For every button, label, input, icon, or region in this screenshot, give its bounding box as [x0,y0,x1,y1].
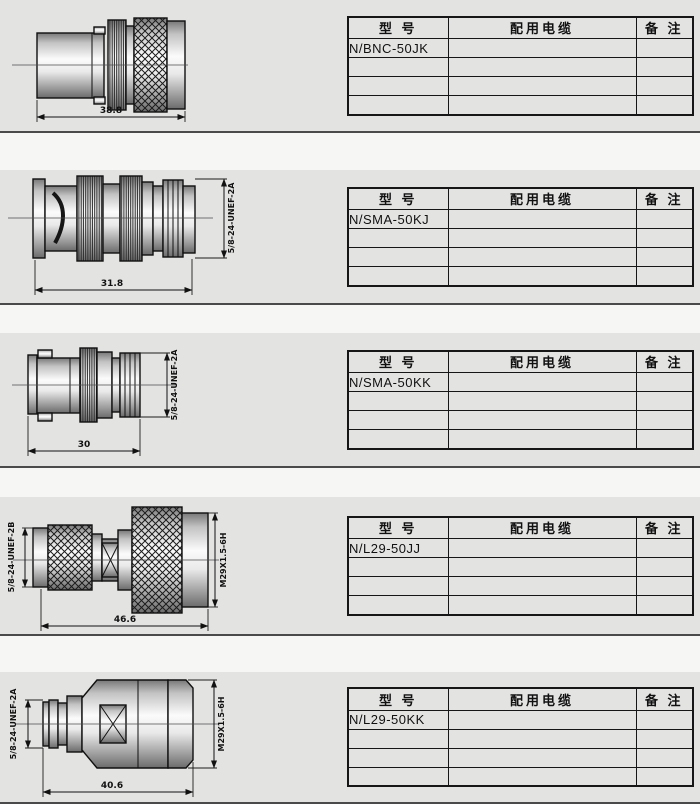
table-header-row: 型 号 配用电缆 备 注 [348,517,693,539]
cable-cell [448,39,636,58]
header-model: 型 号 [348,688,448,710]
empty-cell [448,729,636,748]
dimension-label: 38.8 [100,106,122,116]
drawing-n-l29-50jj: 5/8-24-UNEF-2B M29X1.5-6H 46.6 [5,499,240,636]
connector-body [13,507,219,613]
thread-label: 5/8-24-UNEF-2B [7,522,16,593]
table-row [348,229,693,248]
section-n-bnc-50jk: 38.8 型 号 配用电缆 备 注 N/BNC-50JK [0,0,700,133]
empty-cell [636,596,693,615]
section-n-sma-50kk: 5/8-24-UNEF-2A 30 型 号 配用电缆 备 注 N/SMA-50K… [0,333,700,468]
header-cable: 配用电缆 [448,17,636,39]
empty-cell [636,430,693,449]
table-row: N/BNC-50JK [348,39,693,58]
header-cable: 配用电缆 [448,517,636,539]
spec-table: 型 号 配用电缆 备 注 N/BNC-50JK [347,16,694,116]
section-n-l29-50kk: 5/8-24-UNEF-2A M29X1.5-6H 40.6 型 号 配用电缆 … [0,672,700,804]
thread-dimension-left: 5/8-24-UNEF-2B [7,522,33,593]
spec-table: 型 号 配用电缆 备 注 N/L29-50KK [347,687,694,787]
empty-cell [348,596,448,615]
empty-cell [448,596,636,615]
model-cell: N/SMA-50KK [348,373,448,392]
empty-cell [636,96,693,115]
empty-cell [448,96,636,115]
empty-cell [448,248,636,267]
empty-cell [348,96,448,115]
spec-table-wrap: 型 号 配用电缆 备 注 N/L29-50KK [347,687,694,787]
dimension-label: 30 [78,440,91,450]
section-n-l29-50jj: 5/8-24-UNEF-2B M29X1.5-6H 46.6 型 号 配用电缆 … [0,497,700,636]
table-row [348,411,693,430]
connector-body [15,680,219,768]
thread-dimension-left: 5/8-24-UNEF-2A [9,688,43,760]
model-cell: N/SMA-50KJ [348,210,448,229]
table-row [348,577,693,596]
thread-dimension-right: 5/8-24-UNEF-2A [195,179,236,258]
spec-table-wrap: 型 号 配用电缆 备 注 N/BNC-50JK [347,16,694,116]
header-remark: 备 注 [636,351,693,373]
empty-cell [348,58,448,77]
cable-cell [448,373,636,392]
empty-cell [636,729,693,748]
table-header-row: 型 号 配用电缆 备 注 [348,188,693,210]
remark-cell [636,373,693,392]
empty-cell [348,248,448,267]
drawing-n-sma-50kj: 5/8-24-UNEF-2A 31.8 [8,172,238,304]
thread-label: 5/8-24-UNEF-2A [9,688,18,760]
empty-cell [636,392,693,411]
empty-cell [448,77,636,96]
empty-cell [448,392,636,411]
header-remark: 备 注 [636,688,693,710]
table-row [348,248,693,267]
empty-cell [448,558,636,577]
table-header-row: 型 号 配用电缆 备 注 [348,688,693,710]
empty-cell [348,77,448,96]
cable-cell [448,710,636,729]
remark-cell [636,539,693,558]
table-row [348,748,693,767]
empty-cell [448,411,636,430]
empty-cell [448,229,636,248]
empty-cell [448,748,636,767]
cable-cell [448,210,636,229]
spec-table: 型 号 配用电缆 备 注 N/L29-50JJ [347,516,694,616]
length-dimension: 31.8 [35,259,192,295]
dimension-label: 31.8 [101,279,123,289]
header-model: 型 号 [348,517,448,539]
table-header-row: 型 号 配用电缆 备 注 [348,351,693,373]
header-cable: 配用电缆 [448,688,636,710]
table-row [348,767,693,786]
dimension-label: 46.6 [114,615,136,625]
model-cell: N/L29-50JJ [348,539,448,558]
table-row [348,596,693,615]
drawing-n-bnc-50jk: 38.8 [12,3,192,130]
cable-cell [448,539,636,558]
header-model: 型 号 [348,188,448,210]
table-header-row: 型 号 配用电缆 备 注 [348,17,693,39]
table-row [348,267,693,286]
empty-cell [636,58,693,77]
spec-table: 型 号 配用电缆 备 注 N/SMA-50KJ [347,187,694,287]
section-n-sma-50kj: 5/8-24-UNEF-2A 31.8 型 号 配用电缆 备 注 N/SMA-5… [0,170,700,305]
thread-label: 5/8-24-UNEF-2A [227,182,236,254]
thread-label: M29X1.5-6H [217,696,226,751]
table-row: N/SMA-50KJ [348,210,693,229]
remark-cell [636,210,693,229]
dimension-label: 40.6 [101,781,123,791]
table-row [348,58,693,77]
remark-cell [636,710,693,729]
empty-cell [448,430,636,449]
header-model: 型 号 [348,351,448,373]
header-remark: 备 注 [636,188,693,210]
empty-cell [348,411,448,430]
drawing-n-sma-50kk: 5/8-24-UNEF-2A 30 [12,335,212,467]
remark-cell [636,39,693,58]
connector-body [12,348,177,422]
table-row [348,430,693,449]
table-row [348,96,693,115]
empty-cell [448,58,636,77]
drawing-n-l29-50kk: 5/8-24-UNEF-2A M29X1.5-6H 40.6 [5,674,240,802]
table-row: N/SMA-50KK [348,373,693,392]
empty-cell [448,767,636,786]
empty-cell [636,267,693,286]
thread-label: M29X1.5-6H [219,532,228,587]
empty-cell [636,77,693,96]
model-cell: N/BNC-50JK [348,39,448,58]
empty-cell [636,248,693,267]
header-remark: 备 注 [636,517,693,539]
empty-cell [448,577,636,596]
empty-cell [448,267,636,286]
empty-cell [636,577,693,596]
table-row [348,392,693,411]
empty-cell [348,430,448,449]
header-cable: 配用电缆 [448,188,636,210]
empty-cell [348,229,448,248]
header-remark: 备 注 [636,17,693,39]
empty-cell [348,392,448,411]
empty-cell [348,748,448,767]
header-model: 型 号 [348,17,448,39]
table-row [348,558,693,577]
header-cable: 配用电缆 [448,351,636,373]
spec-table-wrap: 型 号 配用电缆 备 注 N/L29-50JJ [347,516,694,616]
empty-cell [348,729,448,748]
thread-dimension-right: 5/8-24-UNEF-2A [140,349,179,421]
connector-body [8,176,213,261]
empty-cell [636,748,693,767]
empty-cell [348,767,448,786]
connector-body [12,18,188,112]
table-row: N/L29-50KK [348,710,693,729]
thread-label: 5/8-24-UNEF-2A [170,349,179,421]
table-row: N/L29-50JJ [348,539,693,558]
spec-table-wrap: 型 号 配用电缆 备 注 N/SMA-50KJ [347,187,694,287]
empty-cell [636,767,693,786]
model-cell: N/L29-50KK [348,710,448,729]
empty-cell [348,558,448,577]
spec-table-wrap: 型 号 配用电缆 备 注 N/SMA-50KK [347,350,694,450]
empty-cell [636,558,693,577]
spec-table: 型 号 配用电缆 备 注 N/SMA-50KK [347,350,694,450]
empty-cell [636,229,693,248]
empty-cell [636,411,693,430]
empty-cell [348,577,448,596]
table-row [348,77,693,96]
table-row [348,729,693,748]
empty-cell [348,267,448,286]
